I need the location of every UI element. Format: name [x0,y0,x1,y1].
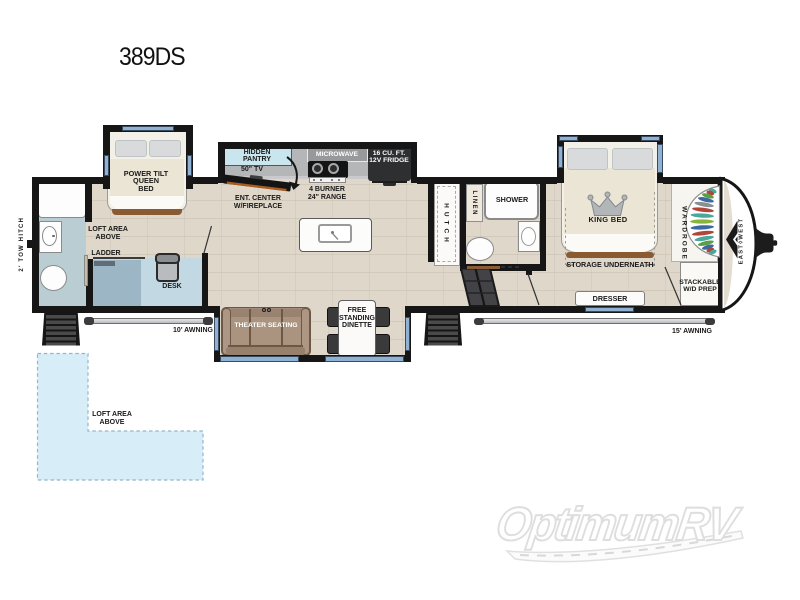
svg-text:EAST◊WEST: EAST◊WEST [737,218,744,265]
